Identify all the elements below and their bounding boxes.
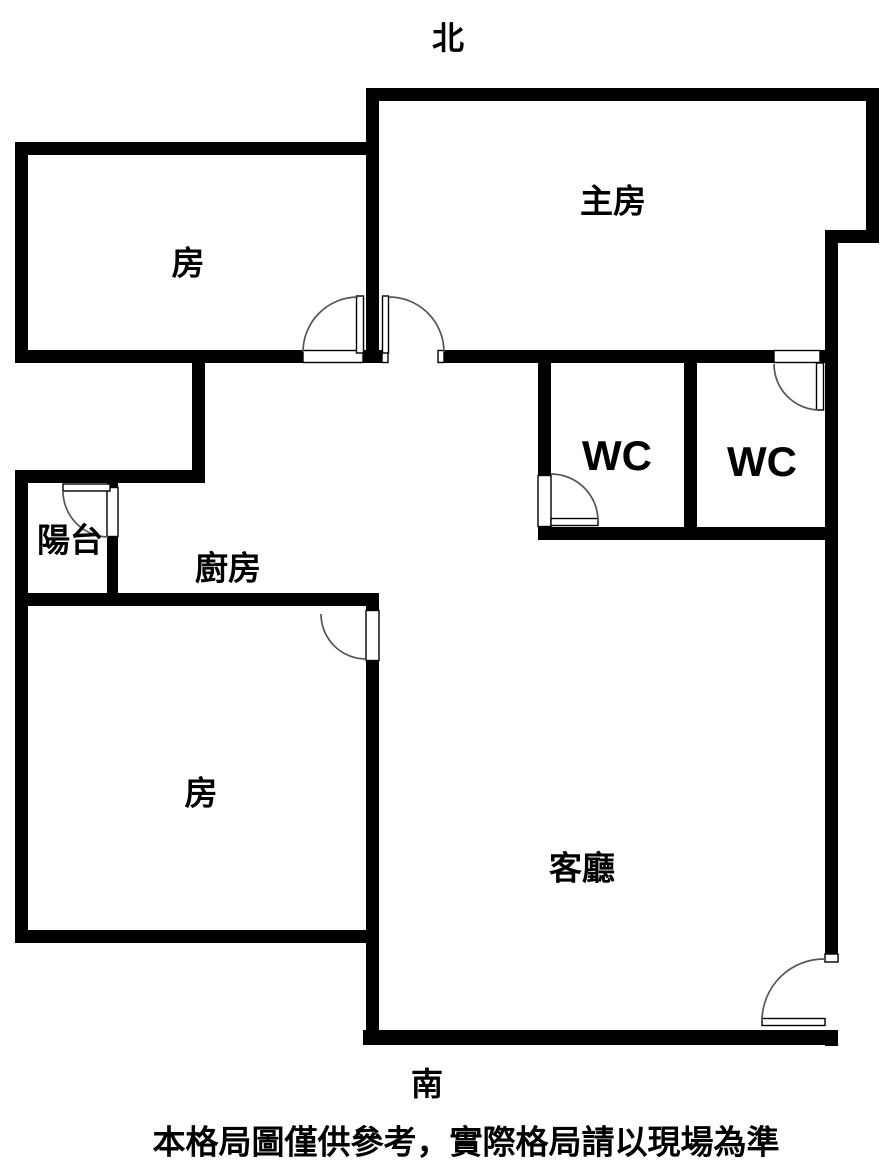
- bedroom-top-left-door: [303, 296, 364, 363]
- door-swing-arc: [389, 297, 444, 352]
- disclaimer-text: 本格局圖僅供參考，實際格局請以現場為準: [153, 1126, 780, 1159]
- floor-plan: 北 房 主房 WC WC 陽台 廚房 房 客廳 南 本格局圖僅供參考，實際格局請…: [0, 0, 889, 1171]
- room-label-living-room: 客廳: [549, 852, 615, 885]
- door-swing-arc: [774, 364, 818, 410]
- compass-north-label: 北: [432, 22, 464, 54]
- room-label-balcony: 陽台: [37, 524, 103, 557]
- walls: [15, 88, 879, 1046]
- room-label-wc-right: WC: [727, 441, 797, 483]
- door-swing-arc: [303, 297, 358, 352]
- door-swing-arc: [321, 614, 366, 659]
- master-bedroom-door: [382, 296, 444, 363]
- door-swing-arc: [762, 959, 825, 1021]
- room-label-bedroom-bottom-left: 房: [185, 777, 218, 810]
- wc-left-door: [538, 474, 598, 527]
- wc-right-door: [774, 351, 824, 411]
- room-label-kitchen: 廚房: [195, 552, 261, 585]
- entrance-door: [762, 954, 838, 1030]
- room-label-wc-left: WC: [582, 435, 652, 477]
- compass-south-label: 南: [411, 1068, 443, 1100]
- door-swing-arc: [551, 474, 598, 521]
- room-label-master-bedroom: 主房: [580, 185, 646, 218]
- floor-plan-drawing: [0, 0, 889, 1171]
- room-label-bedroom-top-left: 房: [172, 247, 205, 280]
- bedroom-bottom-left-door: [321, 611, 379, 661]
